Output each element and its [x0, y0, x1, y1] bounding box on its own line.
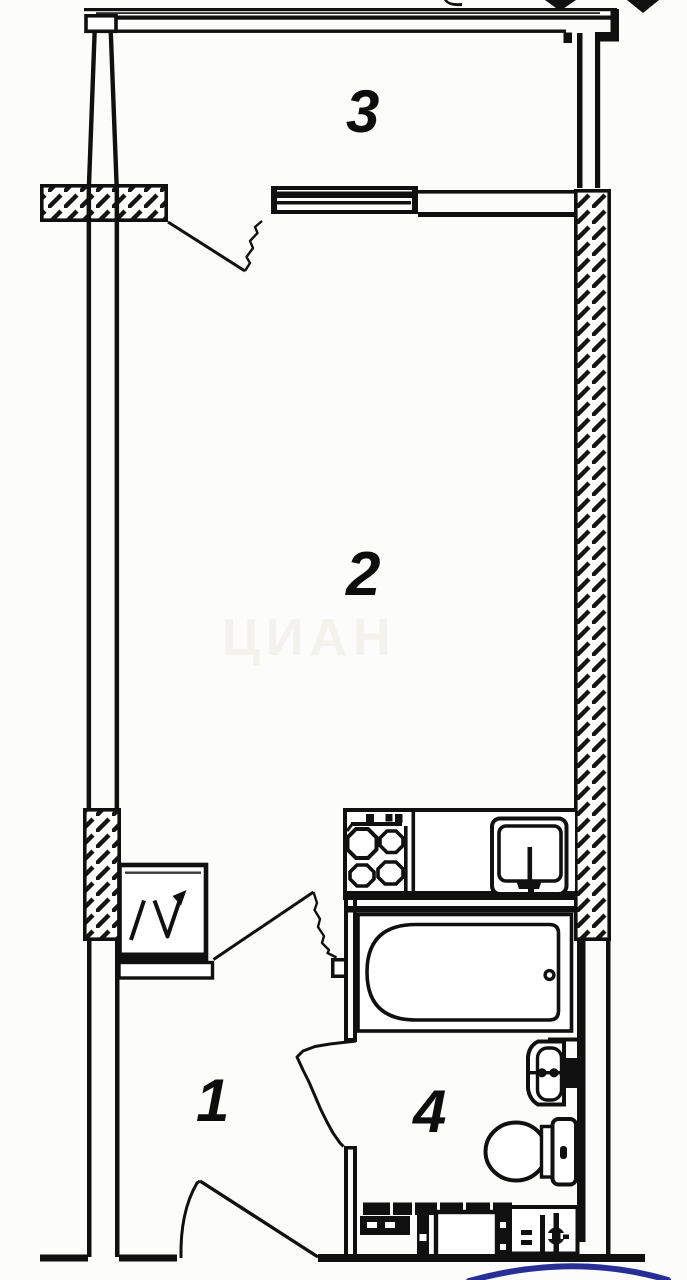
svg-text:4: 4	[412, 1078, 446, 1145]
svg-text:3: 3	[346, 78, 379, 145]
svg-text:1: 1	[196, 1067, 229, 1134]
svg-text:ЦИАН: ЦИАН	[222, 609, 396, 667]
svg-text:2: 2	[345, 540, 380, 609]
